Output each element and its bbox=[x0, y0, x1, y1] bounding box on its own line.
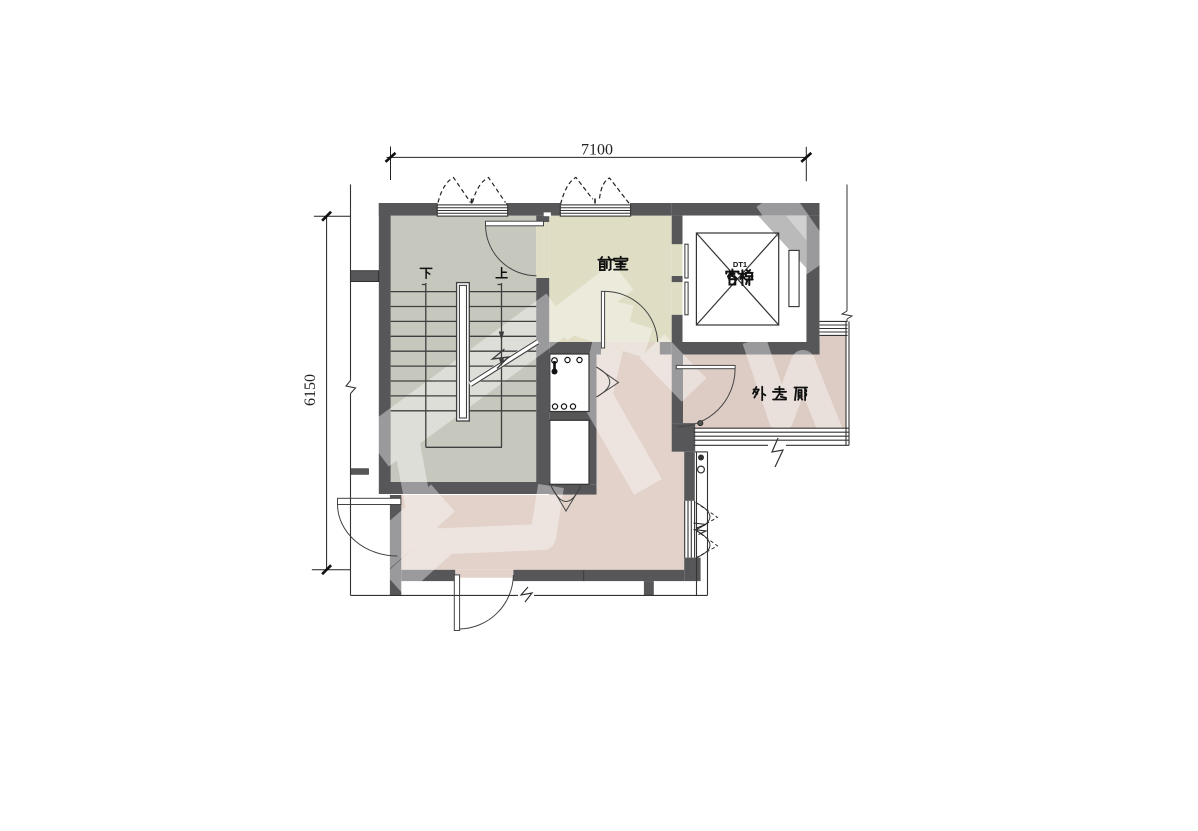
svg-text:6150: 6150 bbox=[302, 374, 319, 406]
svg-text:DT1: DT1 bbox=[733, 260, 747, 269]
svg-text:7100: 7100 bbox=[581, 142, 613, 159]
